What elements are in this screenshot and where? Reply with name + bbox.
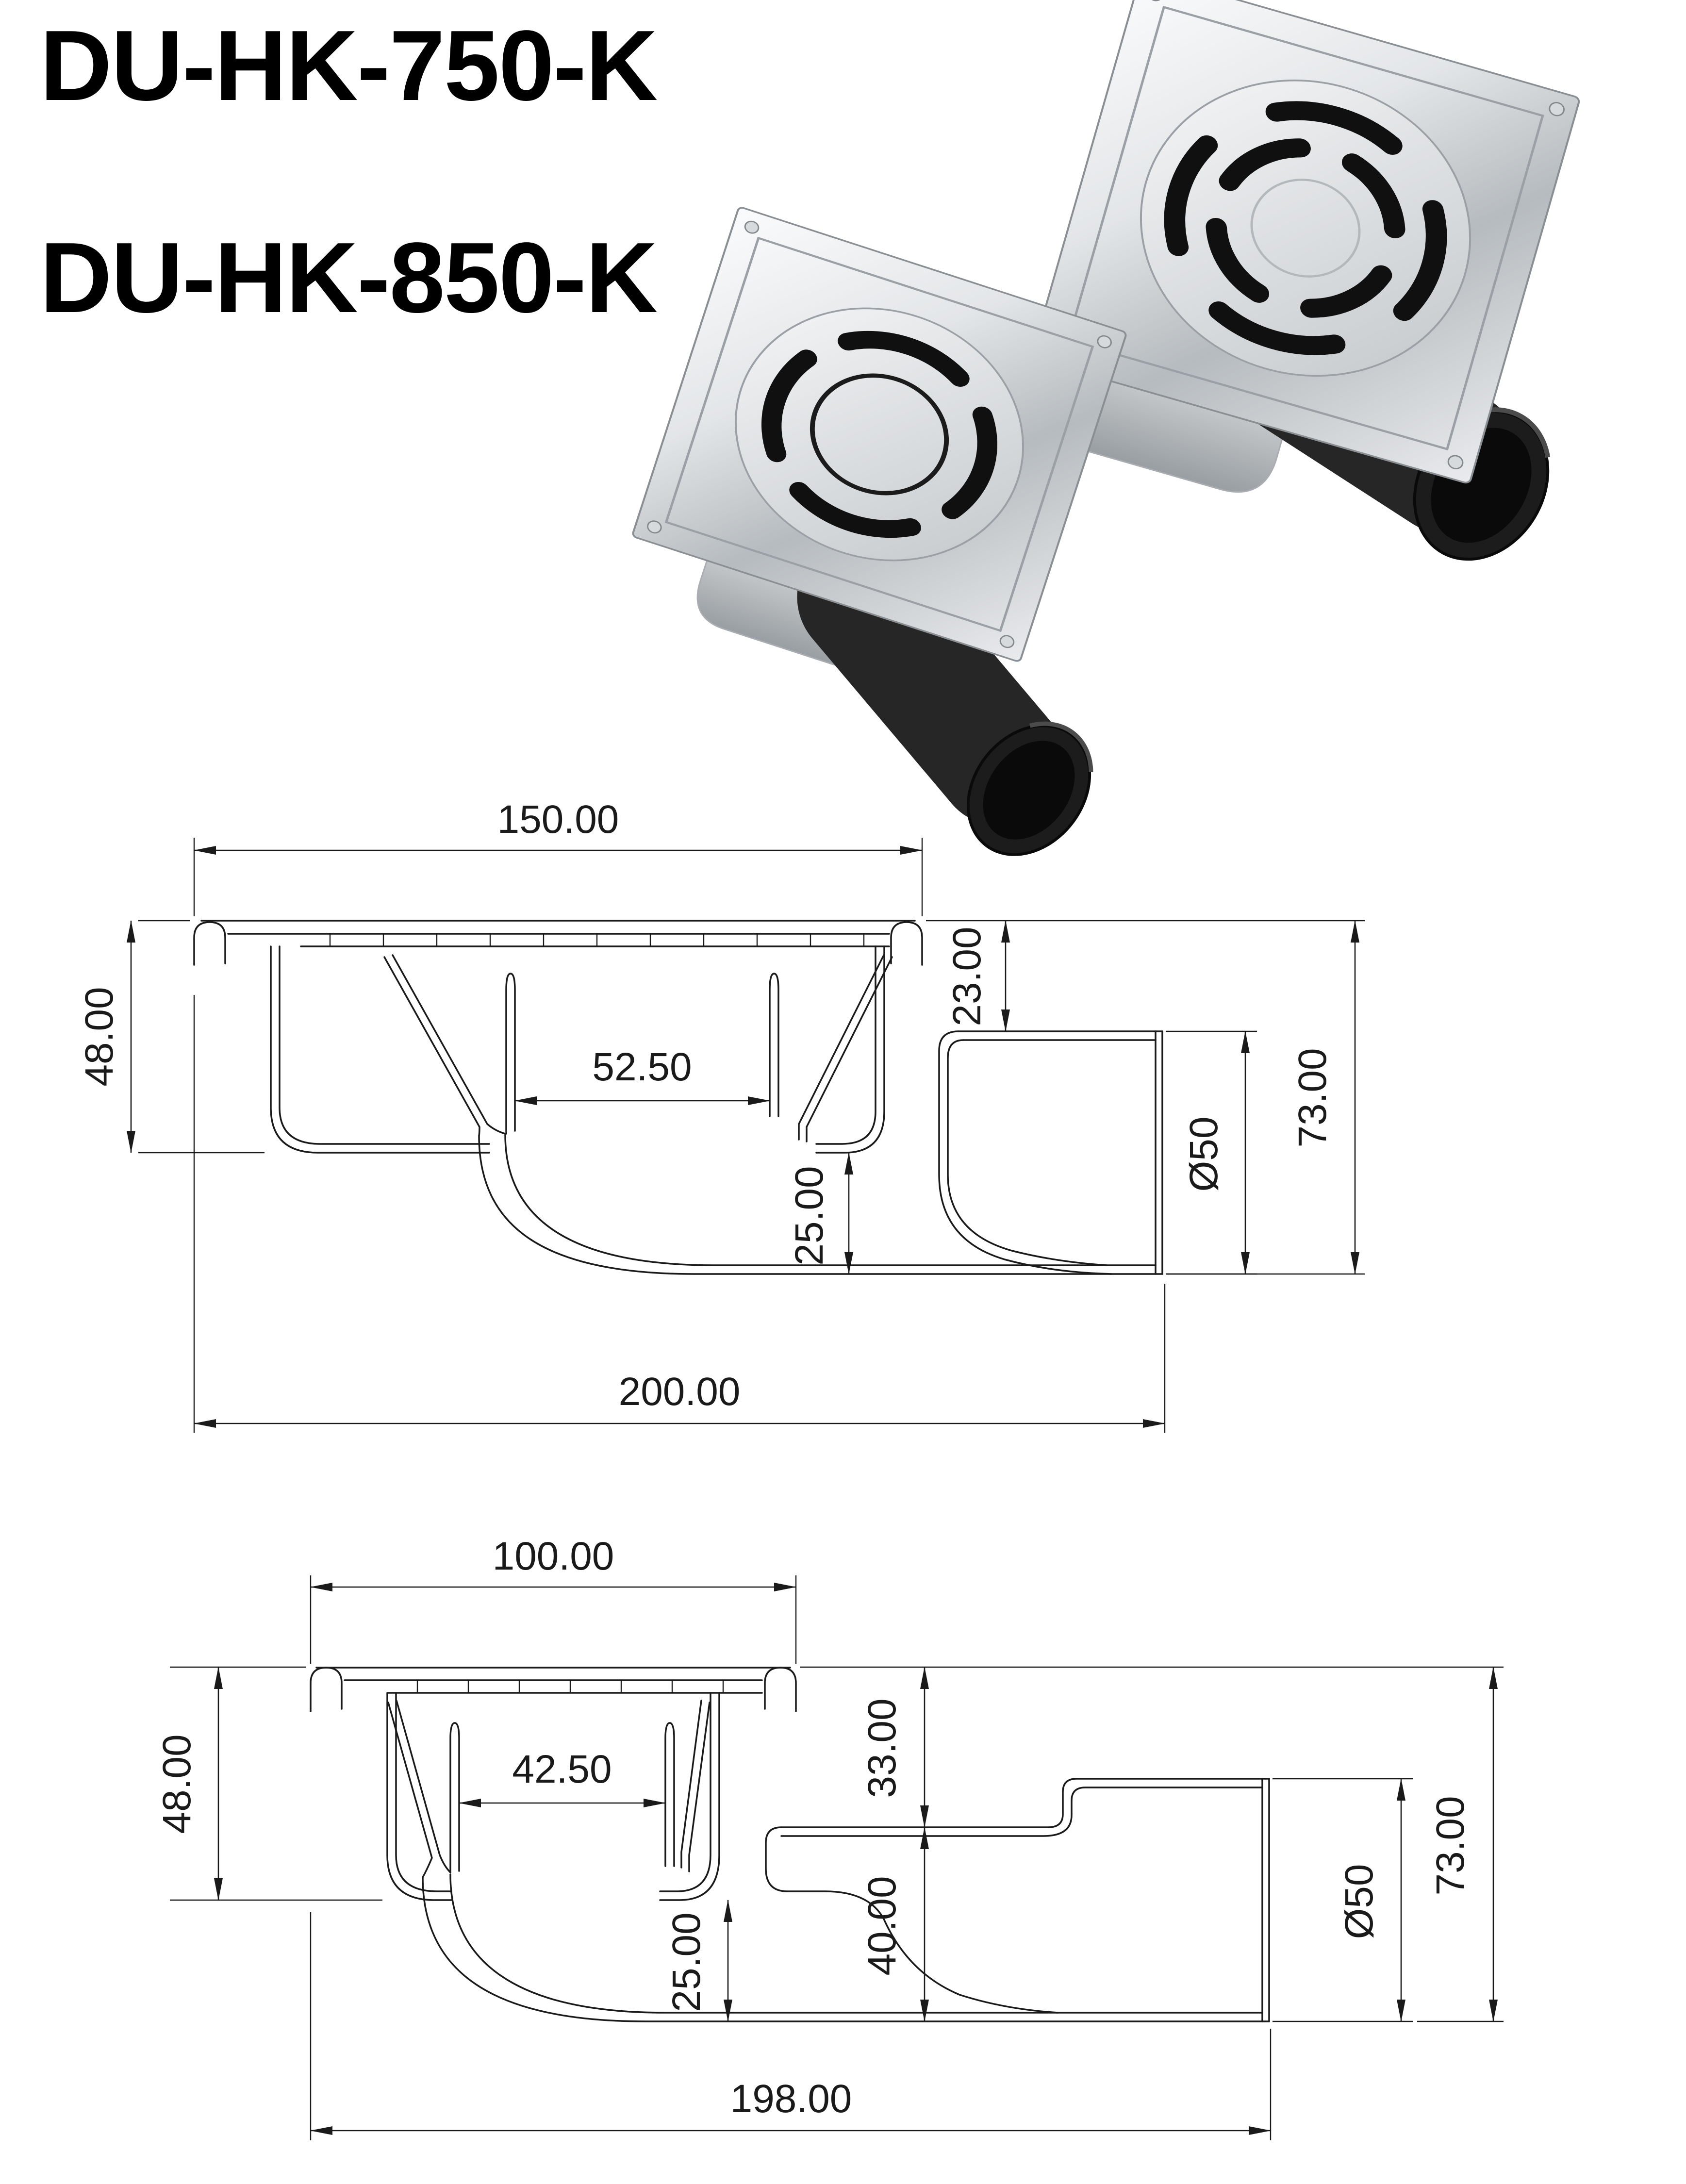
dim-d1-total-length-label: 200.00 (619, 1370, 741, 1414)
dim-d2-top-width-label: 100.00 (493, 1534, 614, 1578)
flange (311, 1668, 796, 1711)
dim-d2-inner-width: 42.50 (459, 1747, 665, 1803)
dim-d2-upper-right-label: 33.00 (860, 1698, 904, 1798)
dim-d2-pipe-diameter: Ø50 (1273, 1779, 1413, 2021)
bowl-body (271, 946, 884, 1153)
dim-d2-total-height: 73.00 (1417, 1667, 1504, 2021)
dim-d1-pipe-diameter-label: Ø50 (1182, 1117, 1226, 1192)
technical-sheet-graphics: 150.00 48.00 52.50 23.00 25.00 (0, 0, 1686, 2184)
floor-drain-render-large (1031, 0, 1580, 584)
dim-d2-upper-right: 33.00 (800, 1667, 1504, 1827)
dim-d1-outlet-drop-label: 25.00 (787, 1166, 831, 1265)
outlet-pipe-section (423, 1779, 1269, 2021)
dim-d2-lower-right: 40.00 (860, 1827, 925, 2021)
dim-d1-flange-to-pipe: 23.00 (926, 921, 1365, 1031)
dim-d1-inner-width: 52.50 (515, 1045, 770, 1101)
dim-d1-flange-to-pipe-label: 23.00 (945, 927, 989, 1026)
dim-d2-lower-right-label: 40.00 (860, 1876, 904, 1975)
dim-d2-total-height-label: 73.00 (1428, 1796, 1472, 1895)
dim-d1-left-height: 48.00 (77, 921, 264, 1153)
dim-d1-total-height-label: 73.00 (1290, 1048, 1335, 1147)
dim-d1-top-width: 150.00 (194, 797, 922, 916)
dim-d2-total-length-label: 198.00 (730, 2077, 852, 2121)
dim-d2-pipe-diameter-label: Ø50 (1337, 1864, 1381, 1939)
dim-d2-outlet-drop-label: 25.00 (664, 1912, 709, 2012)
grate-ticks (417, 1680, 723, 1693)
dim-d2-left-height-label: 48.00 (155, 1734, 199, 1834)
dim-d1-top-width-label: 150.00 (497, 797, 619, 842)
page: DU-HK-750-K DU-HK-850-K (0, 0, 1686, 2184)
dim-d2-top-width: 100.00 (311, 1534, 796, 1664)
bowl-body (387, 1693, 719, 1900)
grate-ticks (330, 934, 864, 946)
section-drawing-1: 150.00 48.00 52.50 23.00 25.00 (77, 797, 1365, 1433)
section-drawing-2: 100.00 48.00 42.50 33.00 40.00 (155, 1534, 1504, 2140)
dim-d2-total-length: 198.00 (311, 1912, 1271, 2140)
dim-d1-pipe-diameter: Ø50 (1166, 1031, 1257, 1274)
flange (194, 921, 922, 965)
dim-d2-outlet-drop: 25.00 (664, 1900, 728, 2021)
dim-d2-left-height: 48.00 (155, 1667, 382, 1900)
dim-d1-outlet-drop: 25.00 (787, 1153, 849, 1274)
dim-d1-left-height-label: 48.00 (77, 987, 121, 1086)
dim-d1-inner-width-label: 52.50 (592, 1045, 692, 1089)
dim-d2-inner-width-label: 42.50 (512, 1747, 612, 1791)
dim-d1-total-height: 73.00 (1166, 921, 1365, 1274)
